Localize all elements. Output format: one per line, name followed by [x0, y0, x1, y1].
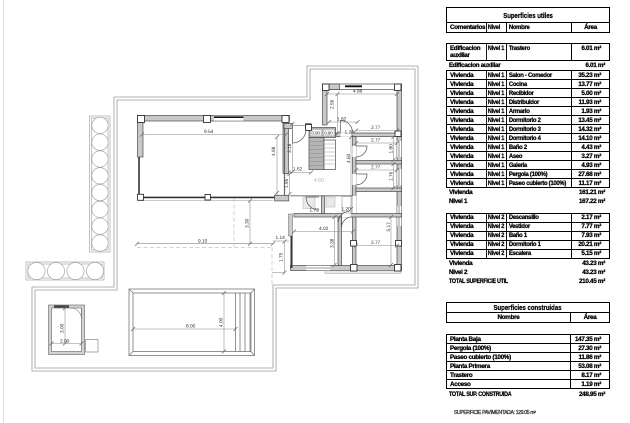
svg-text:3.18: 3.18 — [287, 143, 293, 153]
svg-text:1.14: 1.14 — [276, 235, 286, 241]
svg-text:2.77: 2.77 — [371, 165, 381, 171]
svg-text:4.02: 4.02 — [319, 226, 329, 232]
svg-text:3.30: 3.30 — [245, 218, 251, 228]
svg-text:1.75: 1.75 — [279, 252, 285, 262]
svg-text:1.20: 1.20 — [342, 207, 352, 213]
svg-text:1.82: 1.82 — [337, 117, 347, 123]
svg-text:4.60: 4.60 — [346, 153, 352, 163]
svg-text:3.38: 3.38 — [330, 238, 336, 248]
svg-text:1.72: 1.72 — [310, 208, 320, 214]
svg-text:2.77: 2.77 — [371, 240, 381, 246]
svg-text:0.90: 0.90 — [312, 131, 321, 136]
svg-text:0.90: 0.90 — [324, 131, 333, 136]
svg-text:5.17: 5.17 — [386, 222, 392, 232]
svg-text:2.77: 2.77 — [371, 138, 381, 144]
svg-text:4.98: 4.98 — [271, 146, 277, 156]
svg-text:2.77: 2.77 — [371, 125, 381, 131]
svg-text:8.00: 8.00 — [186, 324, 196, 330]
svg-text:3.00: 3.00 — [60, 323, 66, 333]
svg-text:9.10: 9.10 — [198, 238, 208, 244]
svg-text:4.60: 4.60 — [314, 178, 324, 184]
svg-text:1.95: 1.95 — [284, 178, 290, 188]
svg-text:1.80: 1.80 — [389, 144, 395, 154]
svg-text:2.56: 2.56 — [330, 99, 336, 109]
svg-text:1.62: 1.62 — [293, 167, 303, 173]
svg-text:1.76: 1.76 — [389, 171, 395, 181]
svg-text:9.54: 9.54 — [204, 129, 214, 135]
svg-text:1.20: 1.20 — [345, 130, 355, 136]
svg-text:4.88: 4.88 — [353, 89, 363, 95]
svg-text:4.00: 4.00 — [219, 317, 225, 327]
